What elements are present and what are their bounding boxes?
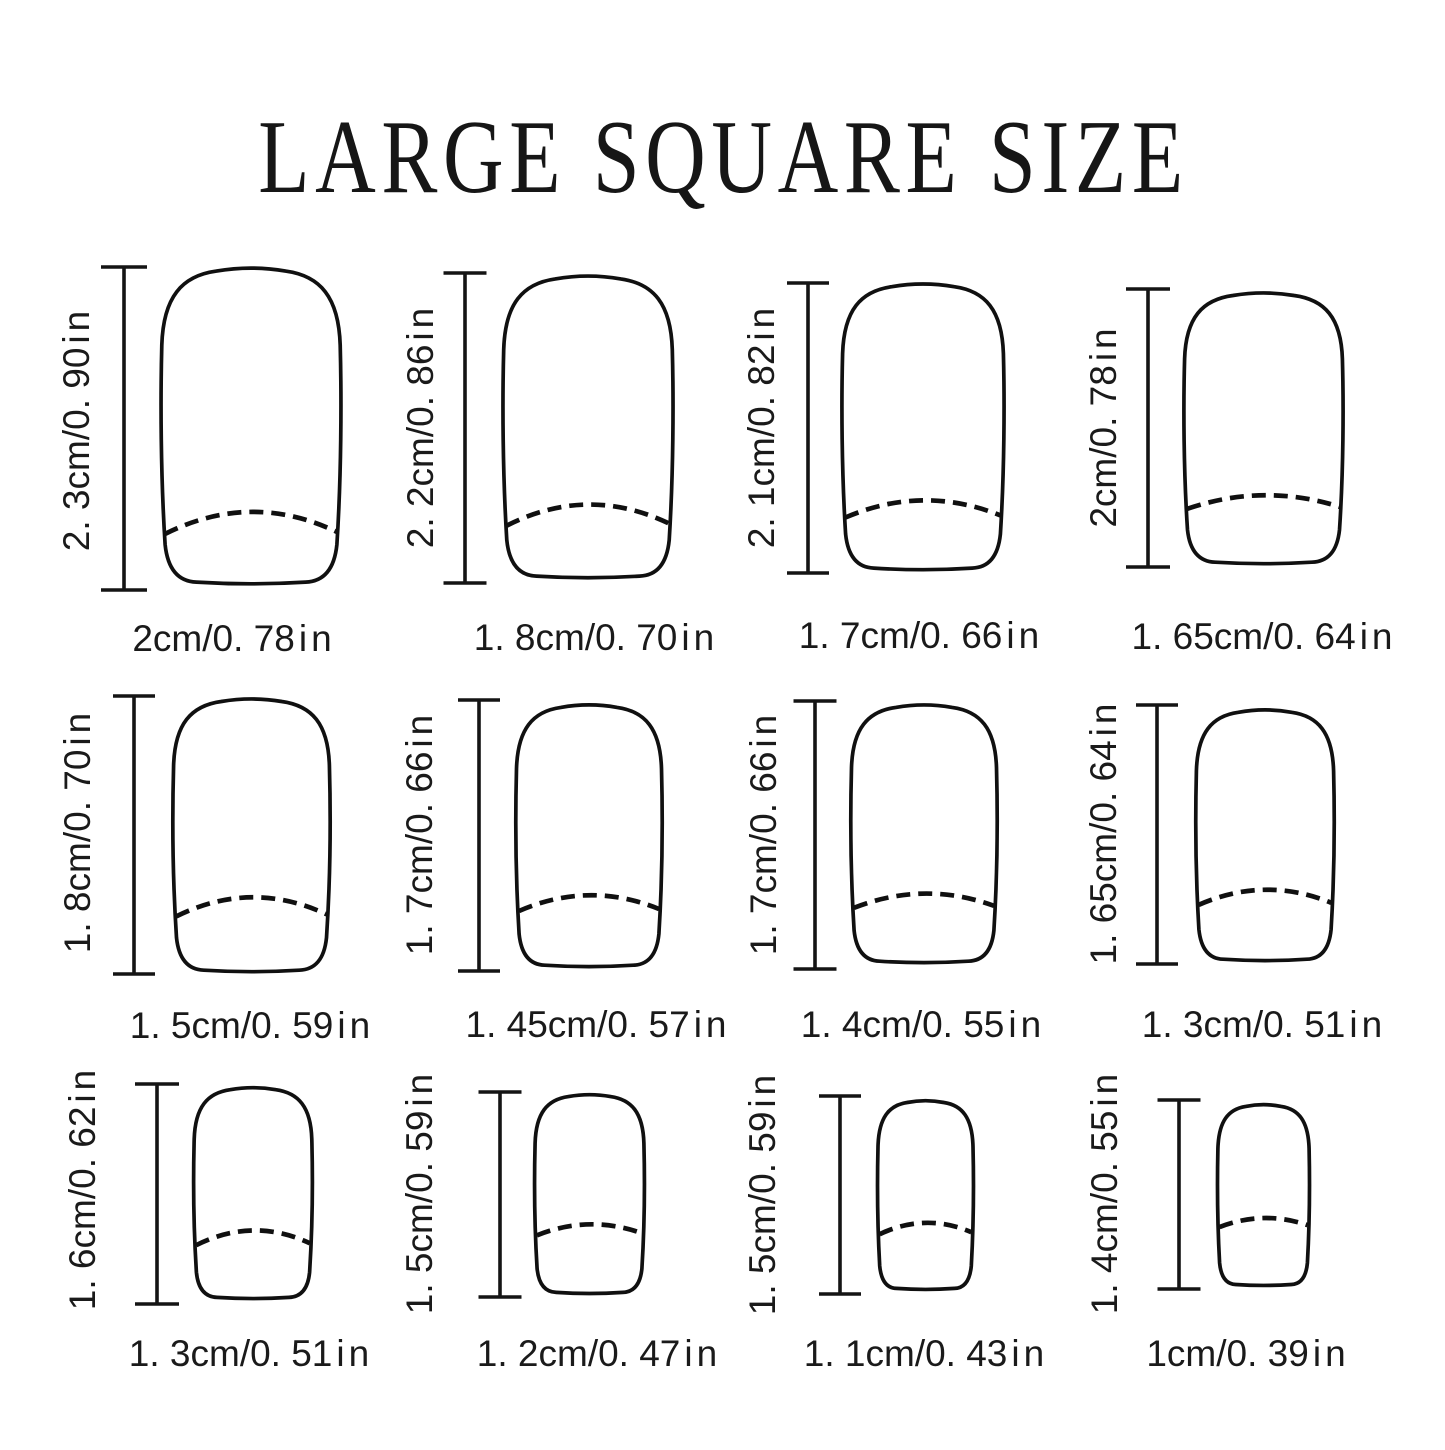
svg-text:1. 65cm/0. 64in: 1. 65cm/0. 64in: [1083, 704, 1124, 965]
svg-text:1cm/0. 39in: 1cm/0. 39in: [1146, 1333, 1345, 1374]
svg-text:2cm/0. 78in: 2cm/0. 78in: [1083, 328, 1124, 527]
svg-text:LARGE SQUARE SIZE: LARGE SQUARE SIZE: [258, 98, 1188, 215]
svg-text:1. 45cm/0. 57in: 1. 45cm/0. 57in: [466, 1004, 727, 1045]
svg-text:1. 65cm/0. 64in: 1. 65cm/0. 64in: [1132, 616, 1393, 657]
svg-text:2cm/0. 78in: 2cm/0. 78in: [132, 618, 331, 659]
